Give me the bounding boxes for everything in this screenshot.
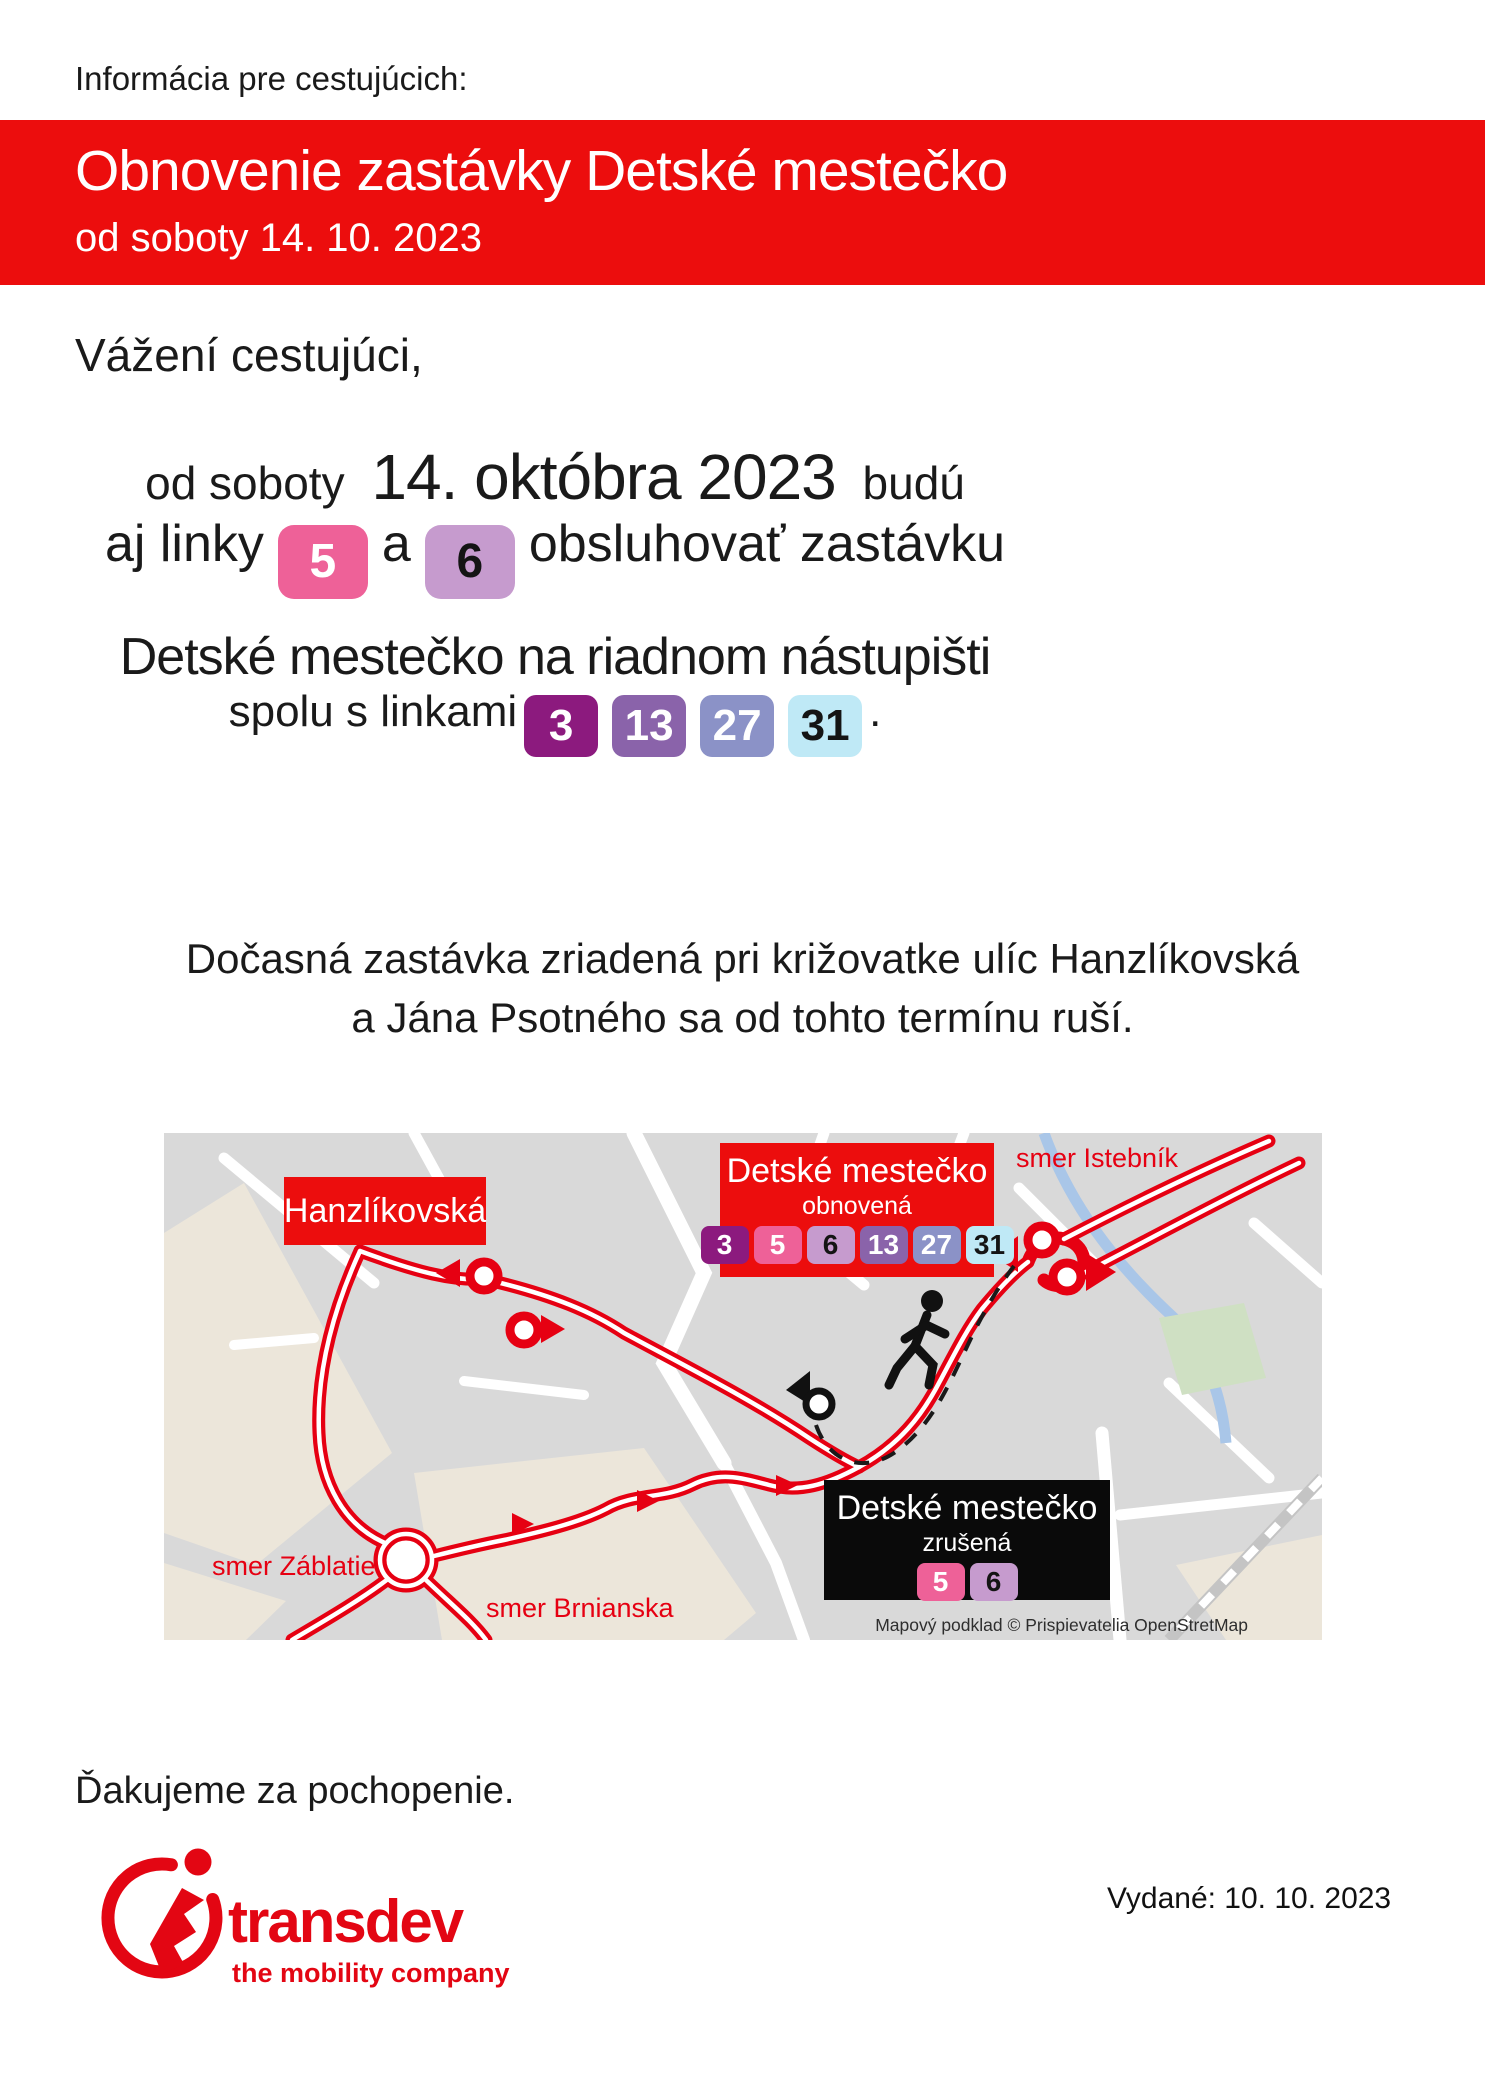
restored-stop-status: obnovená (720, 1192, 994, 1221)
direction-label-brnianska: smer Brnianska (486, 1593, 674, 1624)
line-badge-6: 6 (970, 1563, 1018, 1601)
cancelled-stop-status: zrušená (824, 1529, 1110, 1558)
transdev-logo-mark (108, 1849, 216, 1975)
transdev-logo-canvas: transdev the mobility company (90, 1840, 650, 2000)
line-badge-27: 27 (700, 695, 774, 757)
announcement-line-1: od soboty 14. októbra 2023 budú (60, 440, 1050, 514)
issued-date: Vydané: 10. 10. 2023 (1107, 1882, 1391, 1916)
line-badge-group-3-13-27-31: 3132731 (517, 687, 869, 736)
cancelled-stop-box: Detské mestečko zrušená 56 (824, 1480, 1110, 1600)
direction-label-zablatie: smer Záblatie (212, 1551, 376, 1582)
line-badge-13: 13 (860, 1226, 908, 1264)
announcement-line-4: spolu s linkami3132731. (229, 687, 882, 736)
route-map: Hanzlíkovská Detské mestečko obnovená 35… (164, 1133, 1322, 1640)
line2-conj: a (382, 515, 411, 573)
stop-marker-restored (1053, 1263, 1081, 1291)
line-badge-5: 5 (278, 525, 368, 599)
paragraph-line-1: Dočasná zastávka zriadená pri križovatke… (60, 930, 1425, 989)
restored-stop-lines: 356132731 (720, 1226, 994, 1264)
cancellation-paragraph: Dočasná zastávka zriadená pri križovatke… (60, 930, 1425, 1048)
announcement-block: od soboty 14. októbra 2023 budú aj linky… (60, 440, 1050, 757)
thanks-text: Ďakujeme za pochopenie. (75, 1770, 514, 1813)
line4-pre: spolu s linkami (229, 687, 518, 736)
paragraph-line-2: a Jána Psotného sa od tohto termínu ruší… (60, 989, 1425, 1048)
poster: Informácia pre cestujúcich: Obnovenie za… (0, 0, 1485, 2100)
line-badge-3: 3 (524, 695, 598, 757)
line-badge-13: 13 (612, 695, 686, 757)
announcement-line-3: Detské mestečko na riadnom nástupišti (60, 627, 1050, 687)
line2-pre: aj linky (105, 515, 264, 573)
salutation: Vážení cestujúci, (75, 328, 423, 382)
transdev-logo: transdev the mobility company (90, 1840, 650, 2005)
line-badge-6: 6 (425, 525, 515, 599)
restored-stop-title: Detské mestečko (720, 1152, 994, 1191)
line-badge-6: 6 (807, 1226, 855, 1264)
restored-stop-box: Detské mestečko obnovená 356132731 (720, 1143, 994, 1277)
line-badge-group-5: 5 (264, 515, 382, 573)
line1-date: 14. októbra 2023 (371, 441, 835, 513)
line-badge-5: 5 (917, 1563, 965, 1601)
line-badge-3: 3 (701, 1226, 749, 1264)
line4-period: . (869, 687, 881, 736)
line-badge-group-6: 6 (411, 515, 529, 573)
line-badge-31: 31 (966, 1226, 1014, 1264)
stop-marker (510, 1316, 538, 1344)
title-banner: Obnovenie zastávky Detské mestečko od so… (0, 120, 1485, 285)
line2-post: obsluhovať zastávku (529, 515, 1005, 573)
cancelled-stop-title: Detské mestečko (824, 1489, 1110, 1528)
line-badge-5: 5 (754, 1226, 802, 1264)
stop-marker-cancelled (806, 1391, 832, 1417)
banner-title: Obnovenie zastávky Detské mestečko (75, 138, 1007, 204)
transdev-tagline: the mobility company (232, 1958, 510, 1988)
cancelled-stop-lines: 56 (824, 1563, 1110, 1601)
info-label: Informácia pre cestujúcich: (75, 60, 468, 98)
street-label-hanzlikovska: Hanzlíkovská (284, 1177, 486, 1245)
banner-subtitle: od soboty 14. 10. 2023 (75, 216, 482, 261)
line-badge-27: 27 (913, 1226, 961, 1264)
announcement-line-2: aj linky5a6obsluhovať zastávku (105, 515, 1005, 573)
direction-label-istebnik: smer Istebník (1016, 1143, 1178, 1174)
stop-marker-restored (1028, 1226, 1056, 1254)
transdev-wordmark: transdev (228, 1888, 465, 1955)
line1-post: budú (863, 457, 965, 509)
line1-pre: od soboty (145, 457, 344, 509)
stop-marker (470, 1262, 498, 1290)
map-attribution: Mapový podklad © Prispievatelia OpenStre… (875, 1615, 1248, 1636)
line-badge-31: 31 (788, 695, 862, 757)
